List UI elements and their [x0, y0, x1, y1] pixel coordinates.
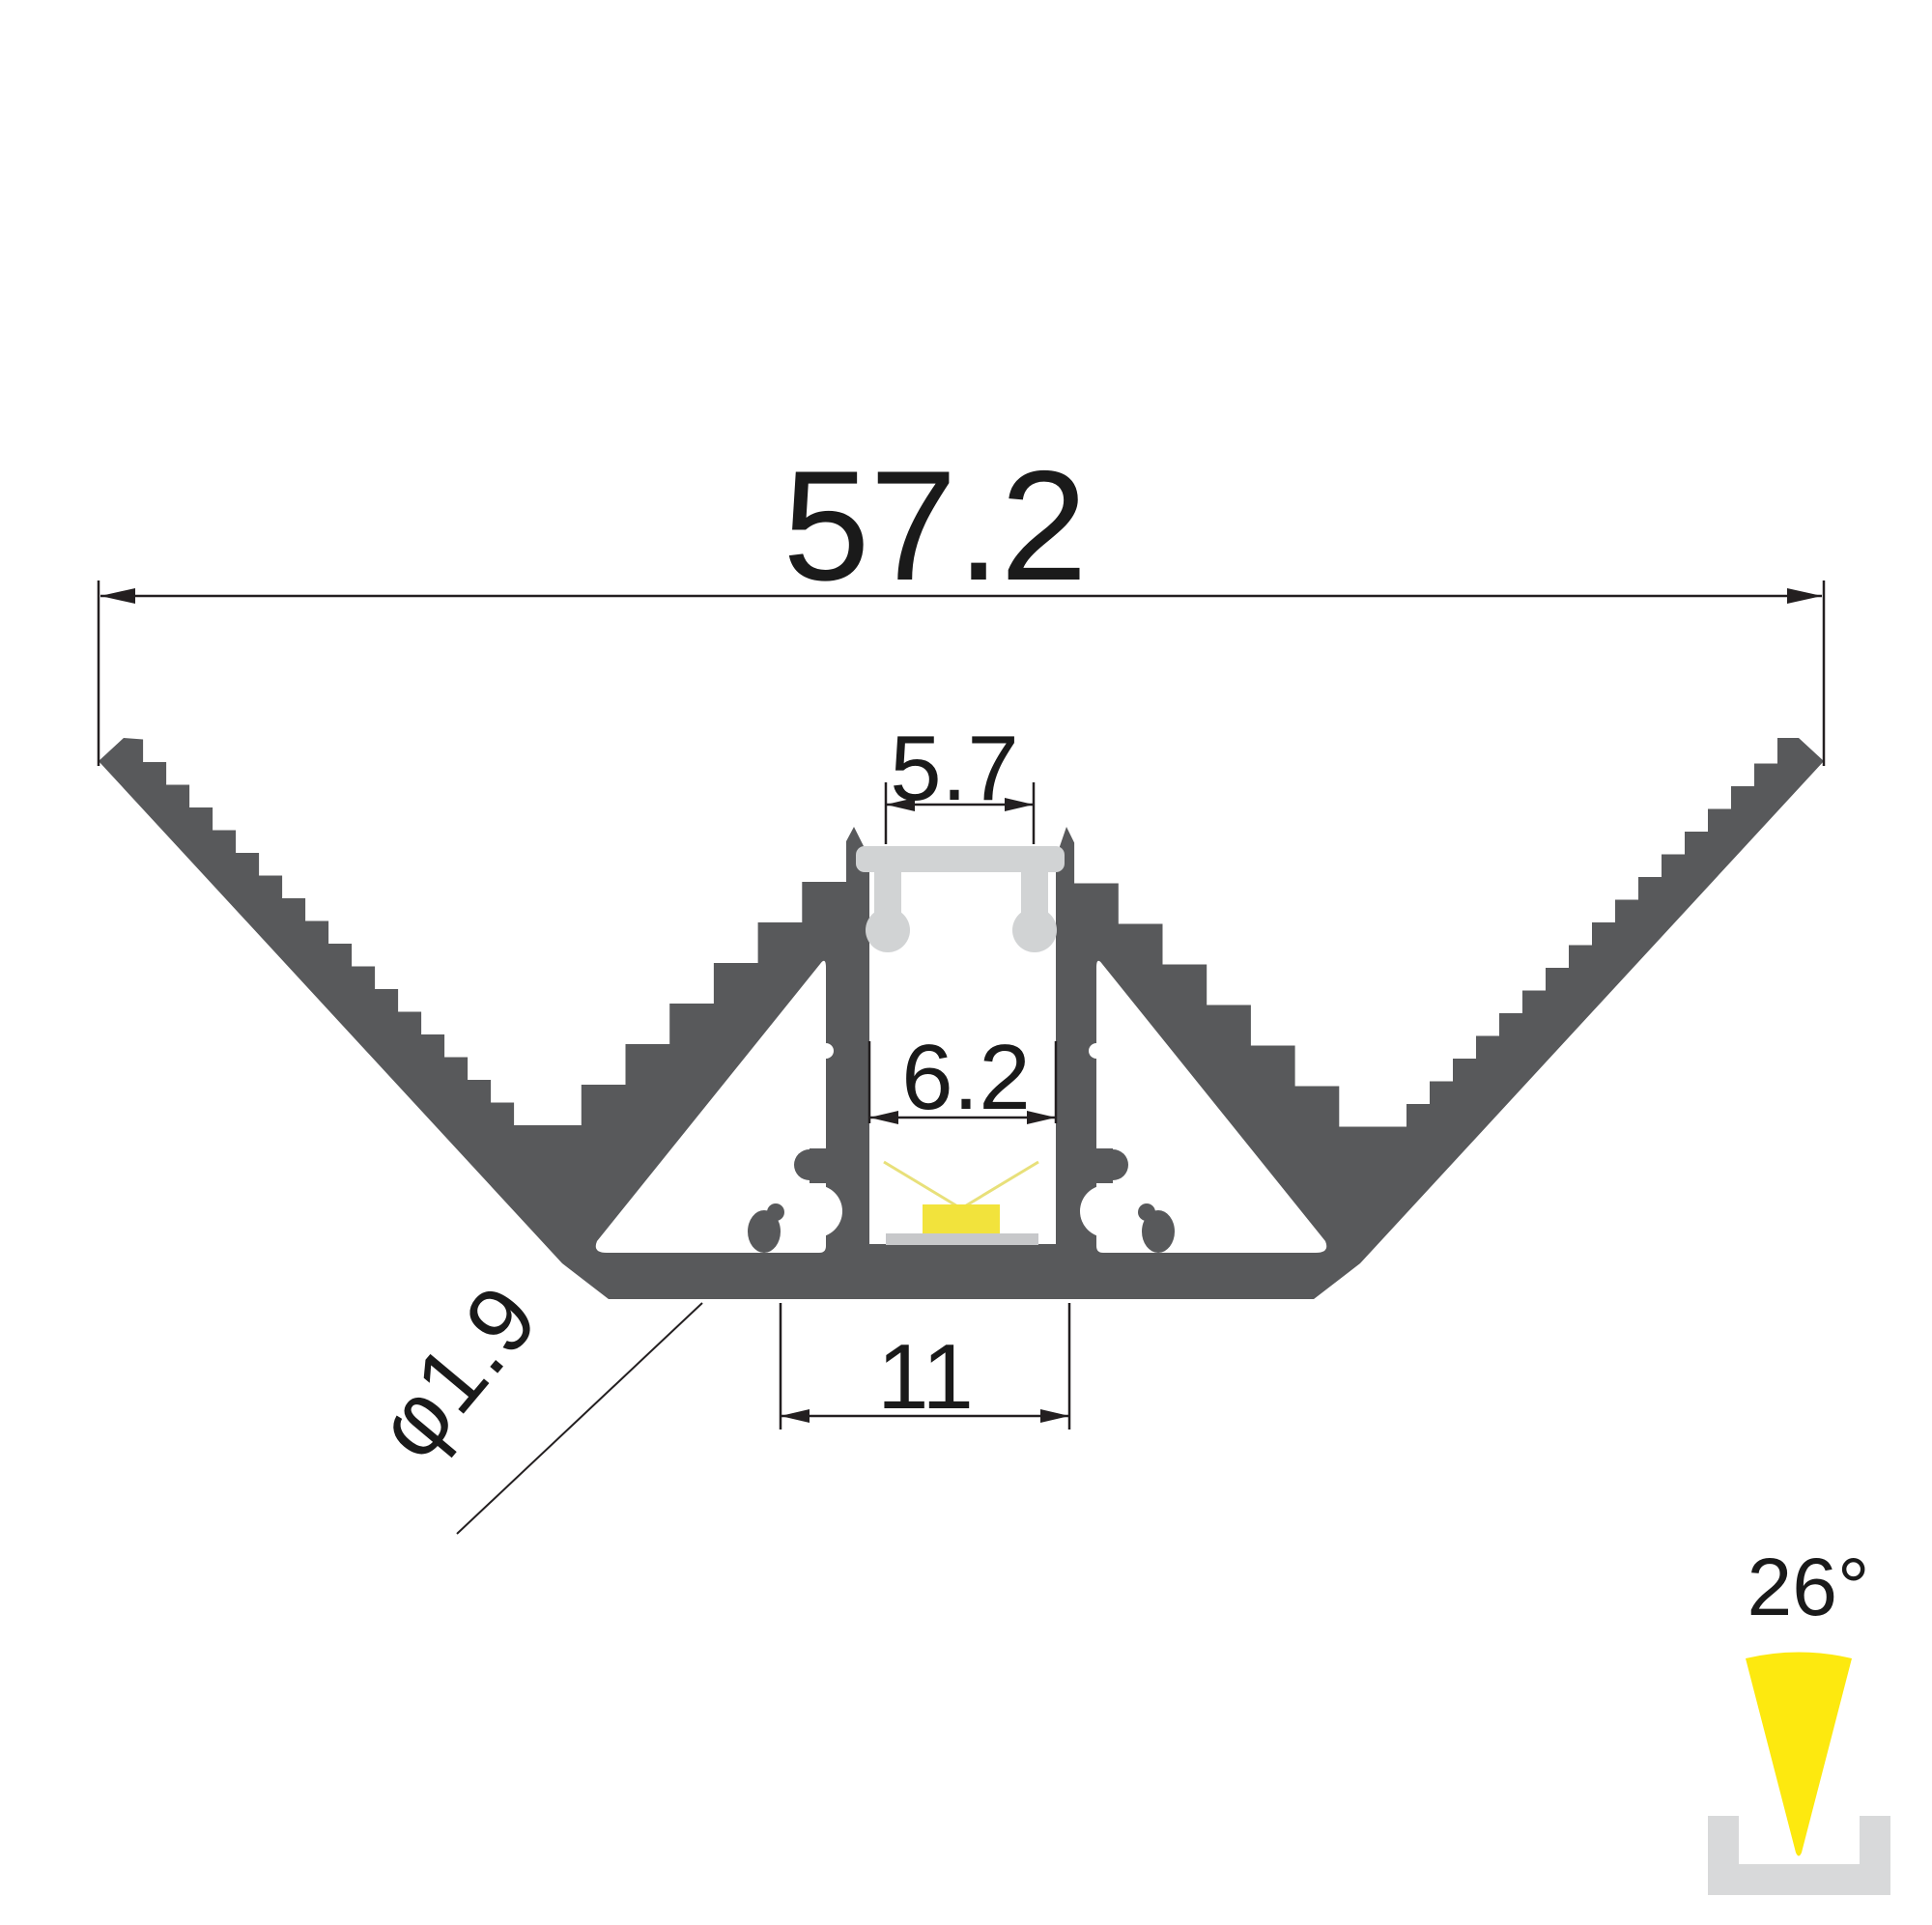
screw-foot-nub-left [767, 1203, 784, 1221]
wall-notch-right [1089, 1043, 1104, 1059]
technical-drawing-page: 57.2 5.7 6.2 11 φ1.9 26° [0, 0, 1932, 1925]
diffuser-foot-left [866, 908, 910, 952]
screw-hole-right [1080, 1185, 1132, 1237]
dim-label-hole-diameter: φ1.9 [356, 1267, 557, 1479]
diffuser-foot-right [1012, 908, 1057, 952]
arrowhead-right [1040, 1409, 1069, 1423]
wall-notch-left [818, 1043, 834, 1059]
screw-hole-left [790, 1185, 842, 1237]
screw-foot-nub-right [1138, 1203, 1155, 1221]
dim-label-slot-opening: 5.7 [890, 717, 1018, 820]
light-rays [884, 1162, 1038, 1207]
led-pcb [886, 1233, 1038, 1245]
arrowhead-left [869, 1111, 898, 1124]
profile-cross-section-drawing: 57.2 5.7 6.2 11 φ1.9 26° [0, 0, 1932, 1925]
arrowhead-left [781, 1409, 810, 1423]
dim-label-base-width: 11 [877, 1325, 974, 1429]
dim-label-cavity-width: 6.2 [901, 1026, 1030, 1129]
dim-label-overall-width: 57.2 [782, 439, 1087, 613]
beam-angle-label: 26° [1747, 1542, 1869, 1632]
beam-cone-icon [1746, 1653, 1852, 1856]
diffuser-cover [856, 846, 1065, 952]
arrowhead-right [1787, 588, 1822, 604]
arrowhead-left [100, 588, 135, 604]
led-chip [923, 1204, 1000, 1233]
screw-hook-right-base [1094, 1148, 1113, 1183]
arrowhead-right [1027, 1111, 1056, 1124]
screw-hook-left-base [810, 1148, 828, 1183]
